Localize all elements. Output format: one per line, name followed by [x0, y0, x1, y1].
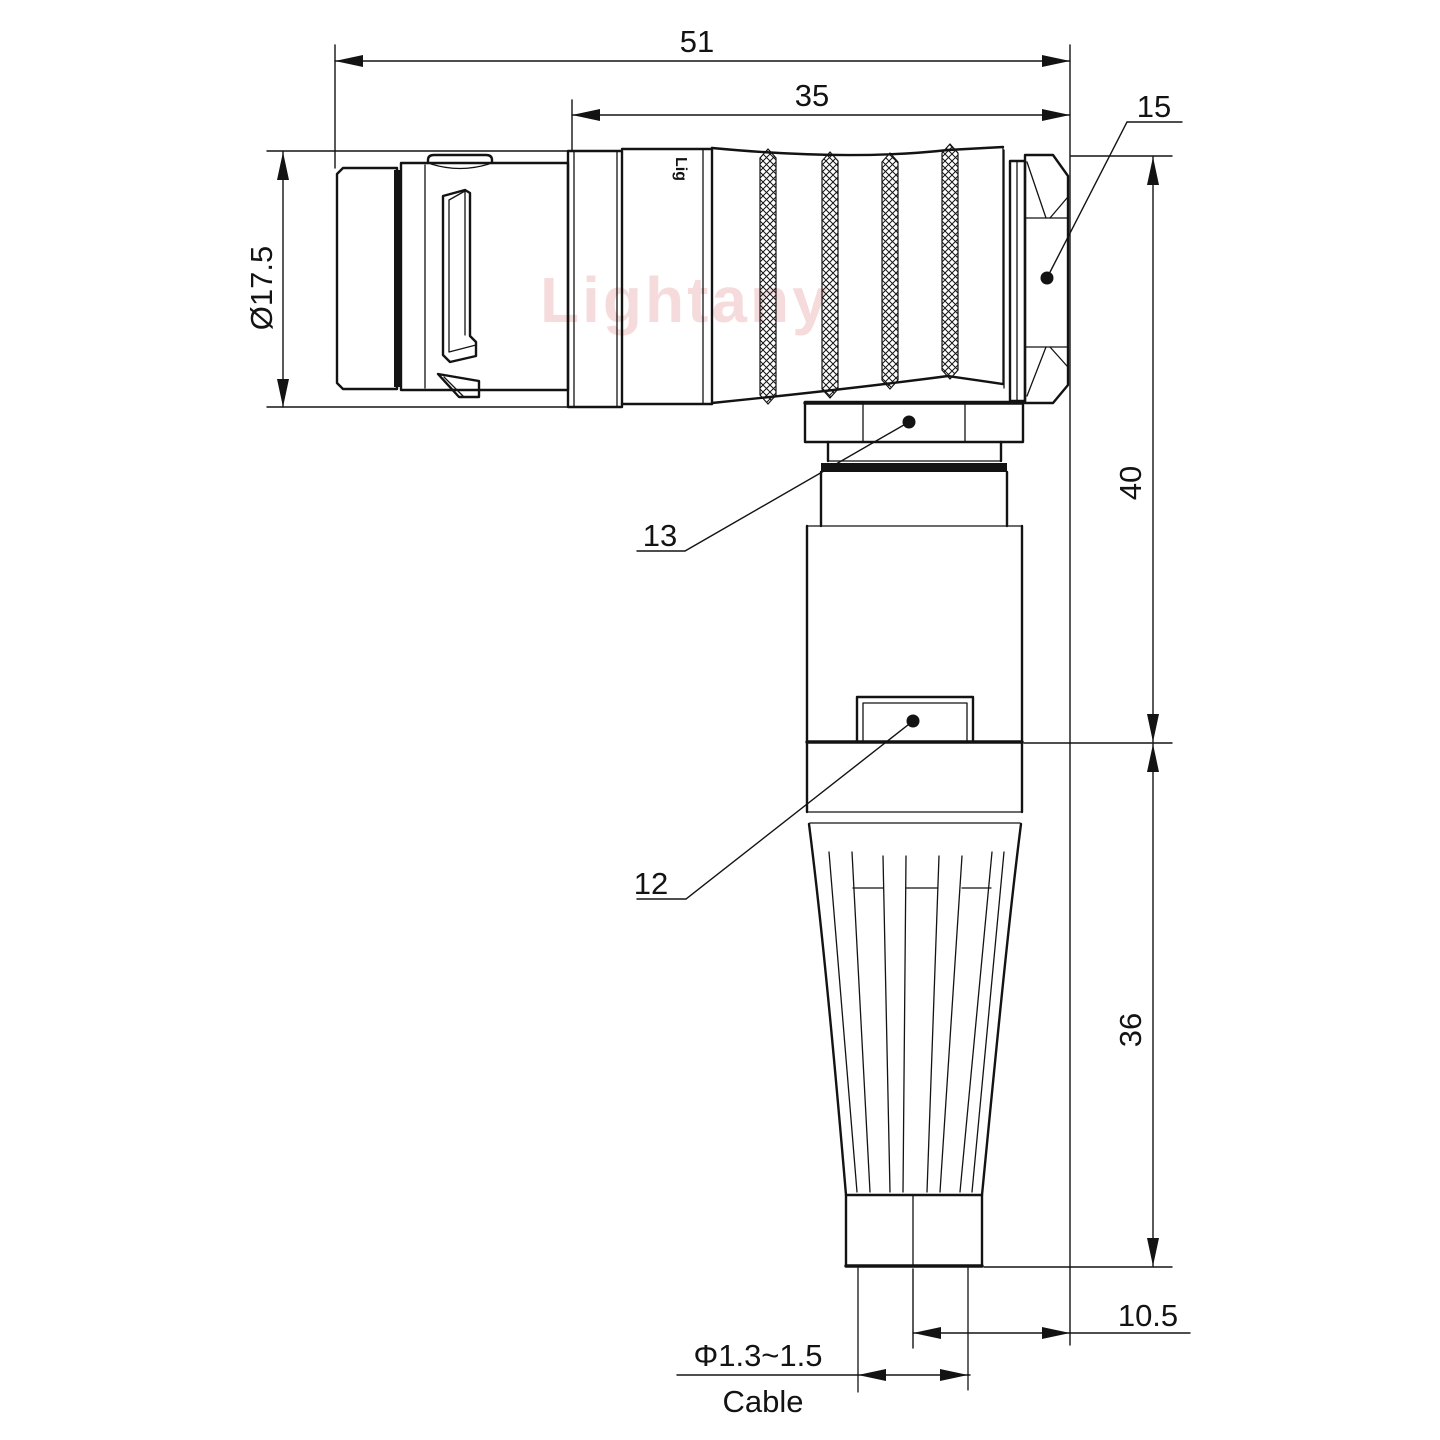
dimension-cable-diameter: Φ1.3~1.5 Cable — [677, 1338, 970, 1419]
dim-10_5-label: 10.5 — [1118, 1298, 1178, 1333]
ref-13-label: 13 — [643, 518, 677, 553]
dim-cable-od-label: Φ1.3~1.5 — [693, 1338, 822, 1373]
body-engraving-text: Lig — [672, 157, 689, 181]
grip-bottom-edge — [712, 376, 1003, 403]
leader-13-collar: 13 — [637, 416, 916, 554]
leader-15-backnut: 15 — [1041, 89, 1183, 285]
dim-40-label: 40 — [1113, 466, 1148, 500]
knurl-strip — [942, 144, 958, 379]
back-washer — [1004, 150, 1025, 401]
dimension-knurl-length: 35 — [572, 78, 1070, 150]
boot-left-profile — [809, 824, 846, 1195]
leader-dot — [907, 715, 920, 728]
leader-dot — [1041, 272, 1054, 285]
dimension-cable-offset: 10.5 — [913, 1269, 1190, 1348]
boot-ribs — [829, 852, 1004, 1192]
ref-15-label: 15 — [1137, 89, 1171, 124]
plug-front-sleeve — [337, 168, 401, 389]
lower-housing — [807, 472, 1022, 742]
leader-dot — [903, 416, 916, 429]
ref-12-label: 12 — [634, 866, 668, 901]
cable-end-cap — [846, 1195, 982, 1266]
knurl-strip — [822, 152, 838, 398]
grip-top-edge — [712, 147, 1003, 155]
dimension-front-diameter: Ø17.5 — [244, 151, 568, 407]
dim-36-label: 36 — [1113, 1013, 1148, 1047]
dim-17_5-label: Ø17.5 — [244, 246, 279, 330]
technical-drawing-page: Lightany Lig — [0, 0, 1440, 1440]
keyway-window — [443, 190, 476, 362]
dimension-elbow-height: 40 — [1024, 156, 1172, 743]
o-ring-band — [821, 463, 1007, 472]
knurl-strip — [760, 149, 776, 404]
connector-drawing-canvas: Lightany Lig — [0, 0, 1440, 1440]
dim-51-label: 51 — [680, 24, 714, 59]
watermark-text: Lightany — [540, 264, 831, 336]
dim-35-label: 35 — [795, 78, 829, 113]
cable-caption: Cable — [723, 1384, 804, 1419]
knurl-strip — [882, 153, 898, 389]
bottom-key-tab — [438, 374, 479, 397]
strain-relief-boot — [807, 743, 1022, 1195]
